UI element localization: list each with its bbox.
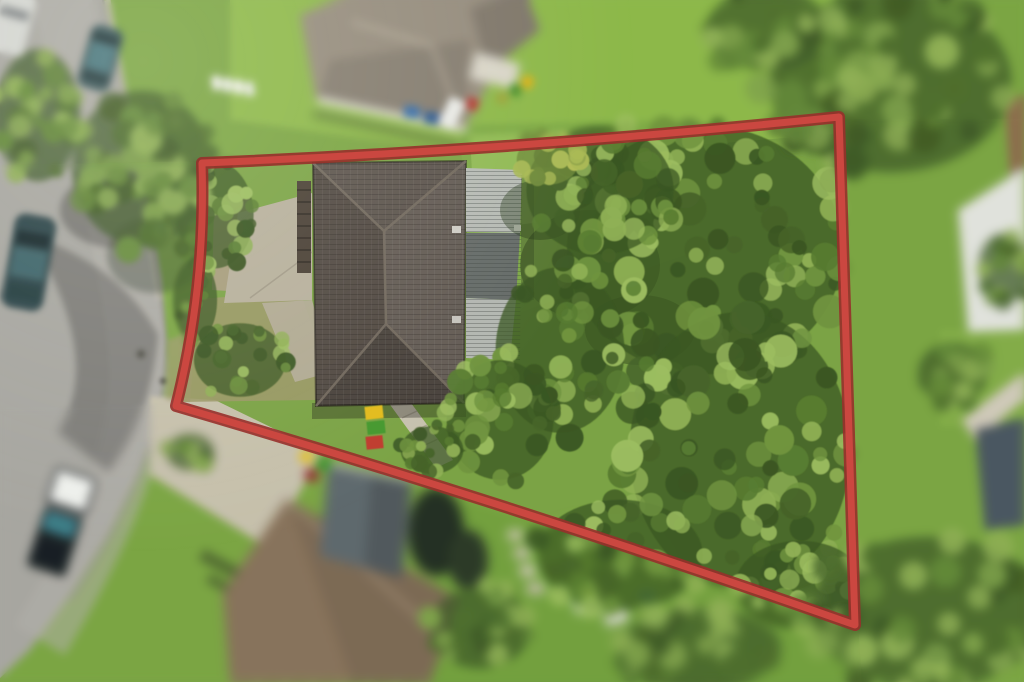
property-boundary-overlay	[0, 0, 1024, 682]
boundary-line	[176, 117, 855, 625]
aerial-photo	[0, 0, 1024, 682]
boundary-outline-dark	[176, 117, 855, 625]
